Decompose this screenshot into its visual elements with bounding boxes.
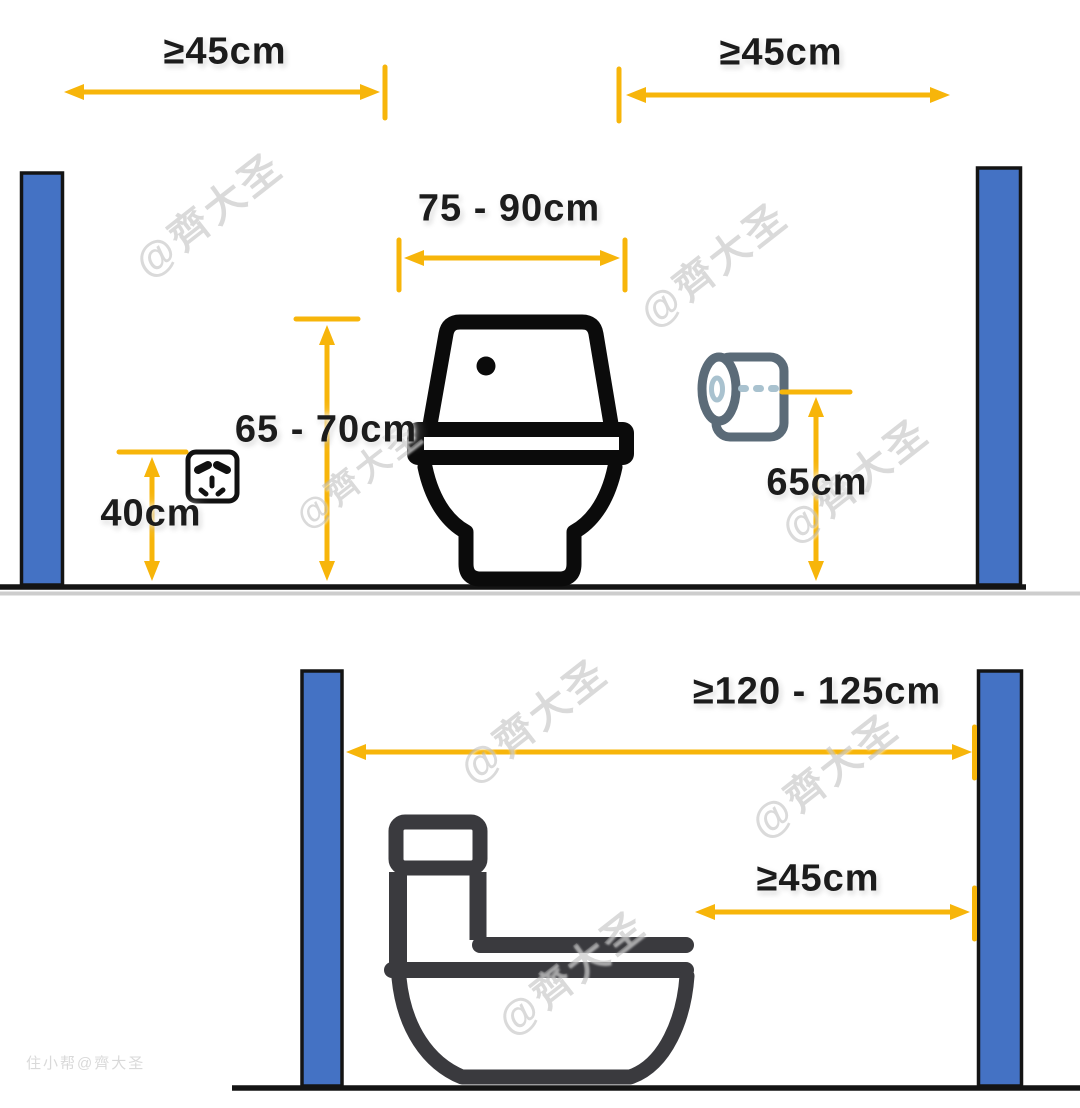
dim-arrow-front-clearance <box>346 727 975 778</box>
dim-arrow-left-clearance <box>64 67 385 118</box>
wall-bottom-left <box>302 671 342 1086</box>
dim-arrow-right-clearance <box>619 69 950 121</box>
watermark-corner: 住小帮@齊大圣 <box>26 1052 145 1073</box>
label-toilet-zone-width: 75 - 90cm <box>418 188 600 231</box>
diagram-graphics <box>0 0 1080 1108</box>
wall-top-left <box>22 173 63 585</box>
toilet-paper-icon <box>702 357 784 437</box>
toilet-side-icon <box>392 822 687 1077</box>
toilet-front-icon <box>407 322 634 579</box>
flush-button <box>477 357 496 376</box>
label-left-clearance: ≥45cm <box>163 31 286 74</box>
label-right-clearance: ≥45cm <box>719 32 842 75</box>
toilet-tank <box>428 322 613 436</box>
label-front-clearance: ≥120 - 125cm <box>693 671 941 714</box>
wall-bottom-right <box>979 671 1022 1086</box>
toilet-seat-slot <box>424 437 619 450</box>
label-socket-height: 40cm <box>100 493 201 536</box>
label-paper-height: 65cm <box>766 462 867 505</box>
wall-top-right <box>978 168 1021 585</box>
toilet-dimension-diagram: ≥45cm ≥45cm 75 - 90cm 65 - 70cm 40cm 65c… <box>0 0 1080 1108</box>
side-tank-cap <box>396 822 480 868</box>
dim-arrow-toilet-zone-width <box>399 240 625 290</box>
label-tank-height: 65 - 70cm <box>235 409 417 452</box>
toilet-bowl <box>425 467 615 579</box>
side-bowl <box>399 976 687 1077</box>
label-min-front-clearance: ≥45cm <box>756 858 879 901</box>
